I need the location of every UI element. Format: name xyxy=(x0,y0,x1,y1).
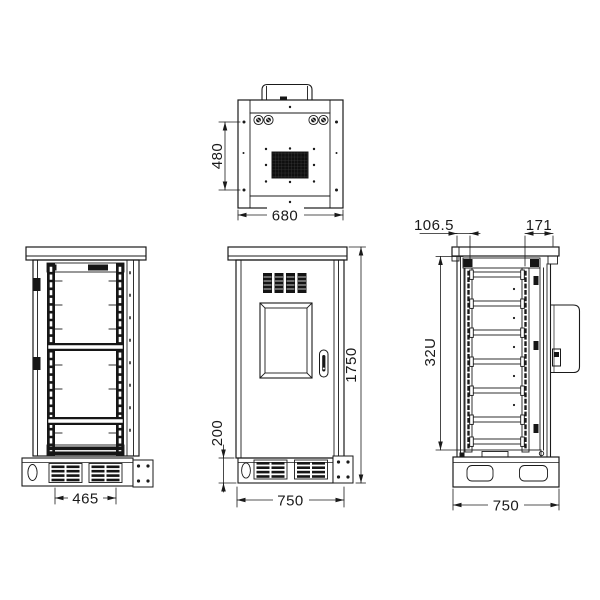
louver-vent xyxy=(89,464,122,483)
front-open-view xyxy=(22,247,153,487)
cable-tray-bar xyxy=(47,343,124,351)
dim-label-front-height: 1750 xyxy=(343,347,360,382)
u-position-ticks xyxy=(55,281,116,433)
dim-label-front-width: 750 xyxy=(277,493,304,510)
dim-label-side-width: 750 xyxy=(493,498,520,515)
cap xyxy=(228,247,347,260)
cable-entry-oval xyxy=(242,463,251,478)
dim-label-rack-units: 32U xyxy=(422,337,439,366)
door-window xyxy=(260,303,312,378)
door-vent xyxy=(263,273,307,293)
cable-gland-group xyxy=(254,115,328,124)
door-handle xyxy=(320,350,329,377)
drawing-canvas: 480 680 465 1750 200 750 106.5 171 32U 7… xyxy=(0,0,600,600)
dim-label-top-width: 680 xyxy=(272,208,299,225)
dim-label-side-front-offset: 171 xyxy=(526,217,553,234)
plinth xyxy=(453,457,559,487)
dim-label-base-height: 200 xyxy=(209,420,226,447)
base-cutout xyxy=(520,466,548,482)
base-cutout xyxy=(467,466,493,482)
louver-vent xyxy=(49,464,82,483)
top-view xyxy=(238,85,343,209)
dim-label-top-depth: 480 xyxy=(209,143,226,170)
dim-label-side-back-offset: 106.5 xyxy=(414,217,454,234)
dim-label-rack-width: 465 xyxy=(72,491,99,508)
roof xyxy=(452,247,559,256)
mounting-bracket xyxy=(133,460,153,487)
cable-entry-oval xyxy=(28,465,37,481)
door-fittings xyxy=(534,276,539,433)
mounting-bracket xyxy=(333,456,353,483)
plinth xyxy=(238,456,353,483)
cap xyxy=(26,247,146,260)
side-mounted-box xyxy=(551,305,580,373)
rack-rails xyxy=(47,263,124,456)
rack-shelves xyxy=(470,270,525,446)
cable-tray-bar xyxy=(47,417,124,425)
door-hinges xyxy=(34,278,41,370)
front-view xyxy=(228,247,353,483)
fan-grille xyxy=(272,152,308,178)
dim-base-height xyxy=(219,445,236,492)
plinth xyxy=(22,458,153,487)
cabinet-engineering-drawing: 480 680 465 1750 200 750 106.5 171 32U 7… xyxy=(0,0,600,600)
dim-rack-units xyxy=(436,257,463,451)
side-view xyxy=(452,247,580,487)
